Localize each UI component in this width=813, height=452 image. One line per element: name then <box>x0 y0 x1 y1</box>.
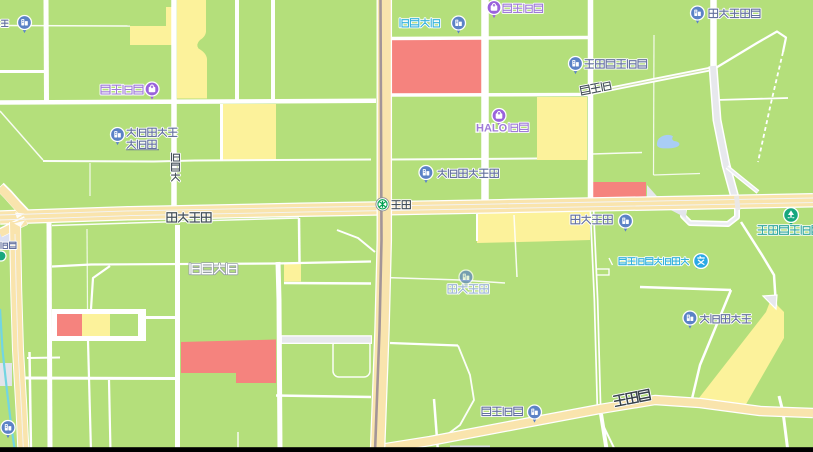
svg-text:HALO: HALO <box>476 123 508 135</box>
